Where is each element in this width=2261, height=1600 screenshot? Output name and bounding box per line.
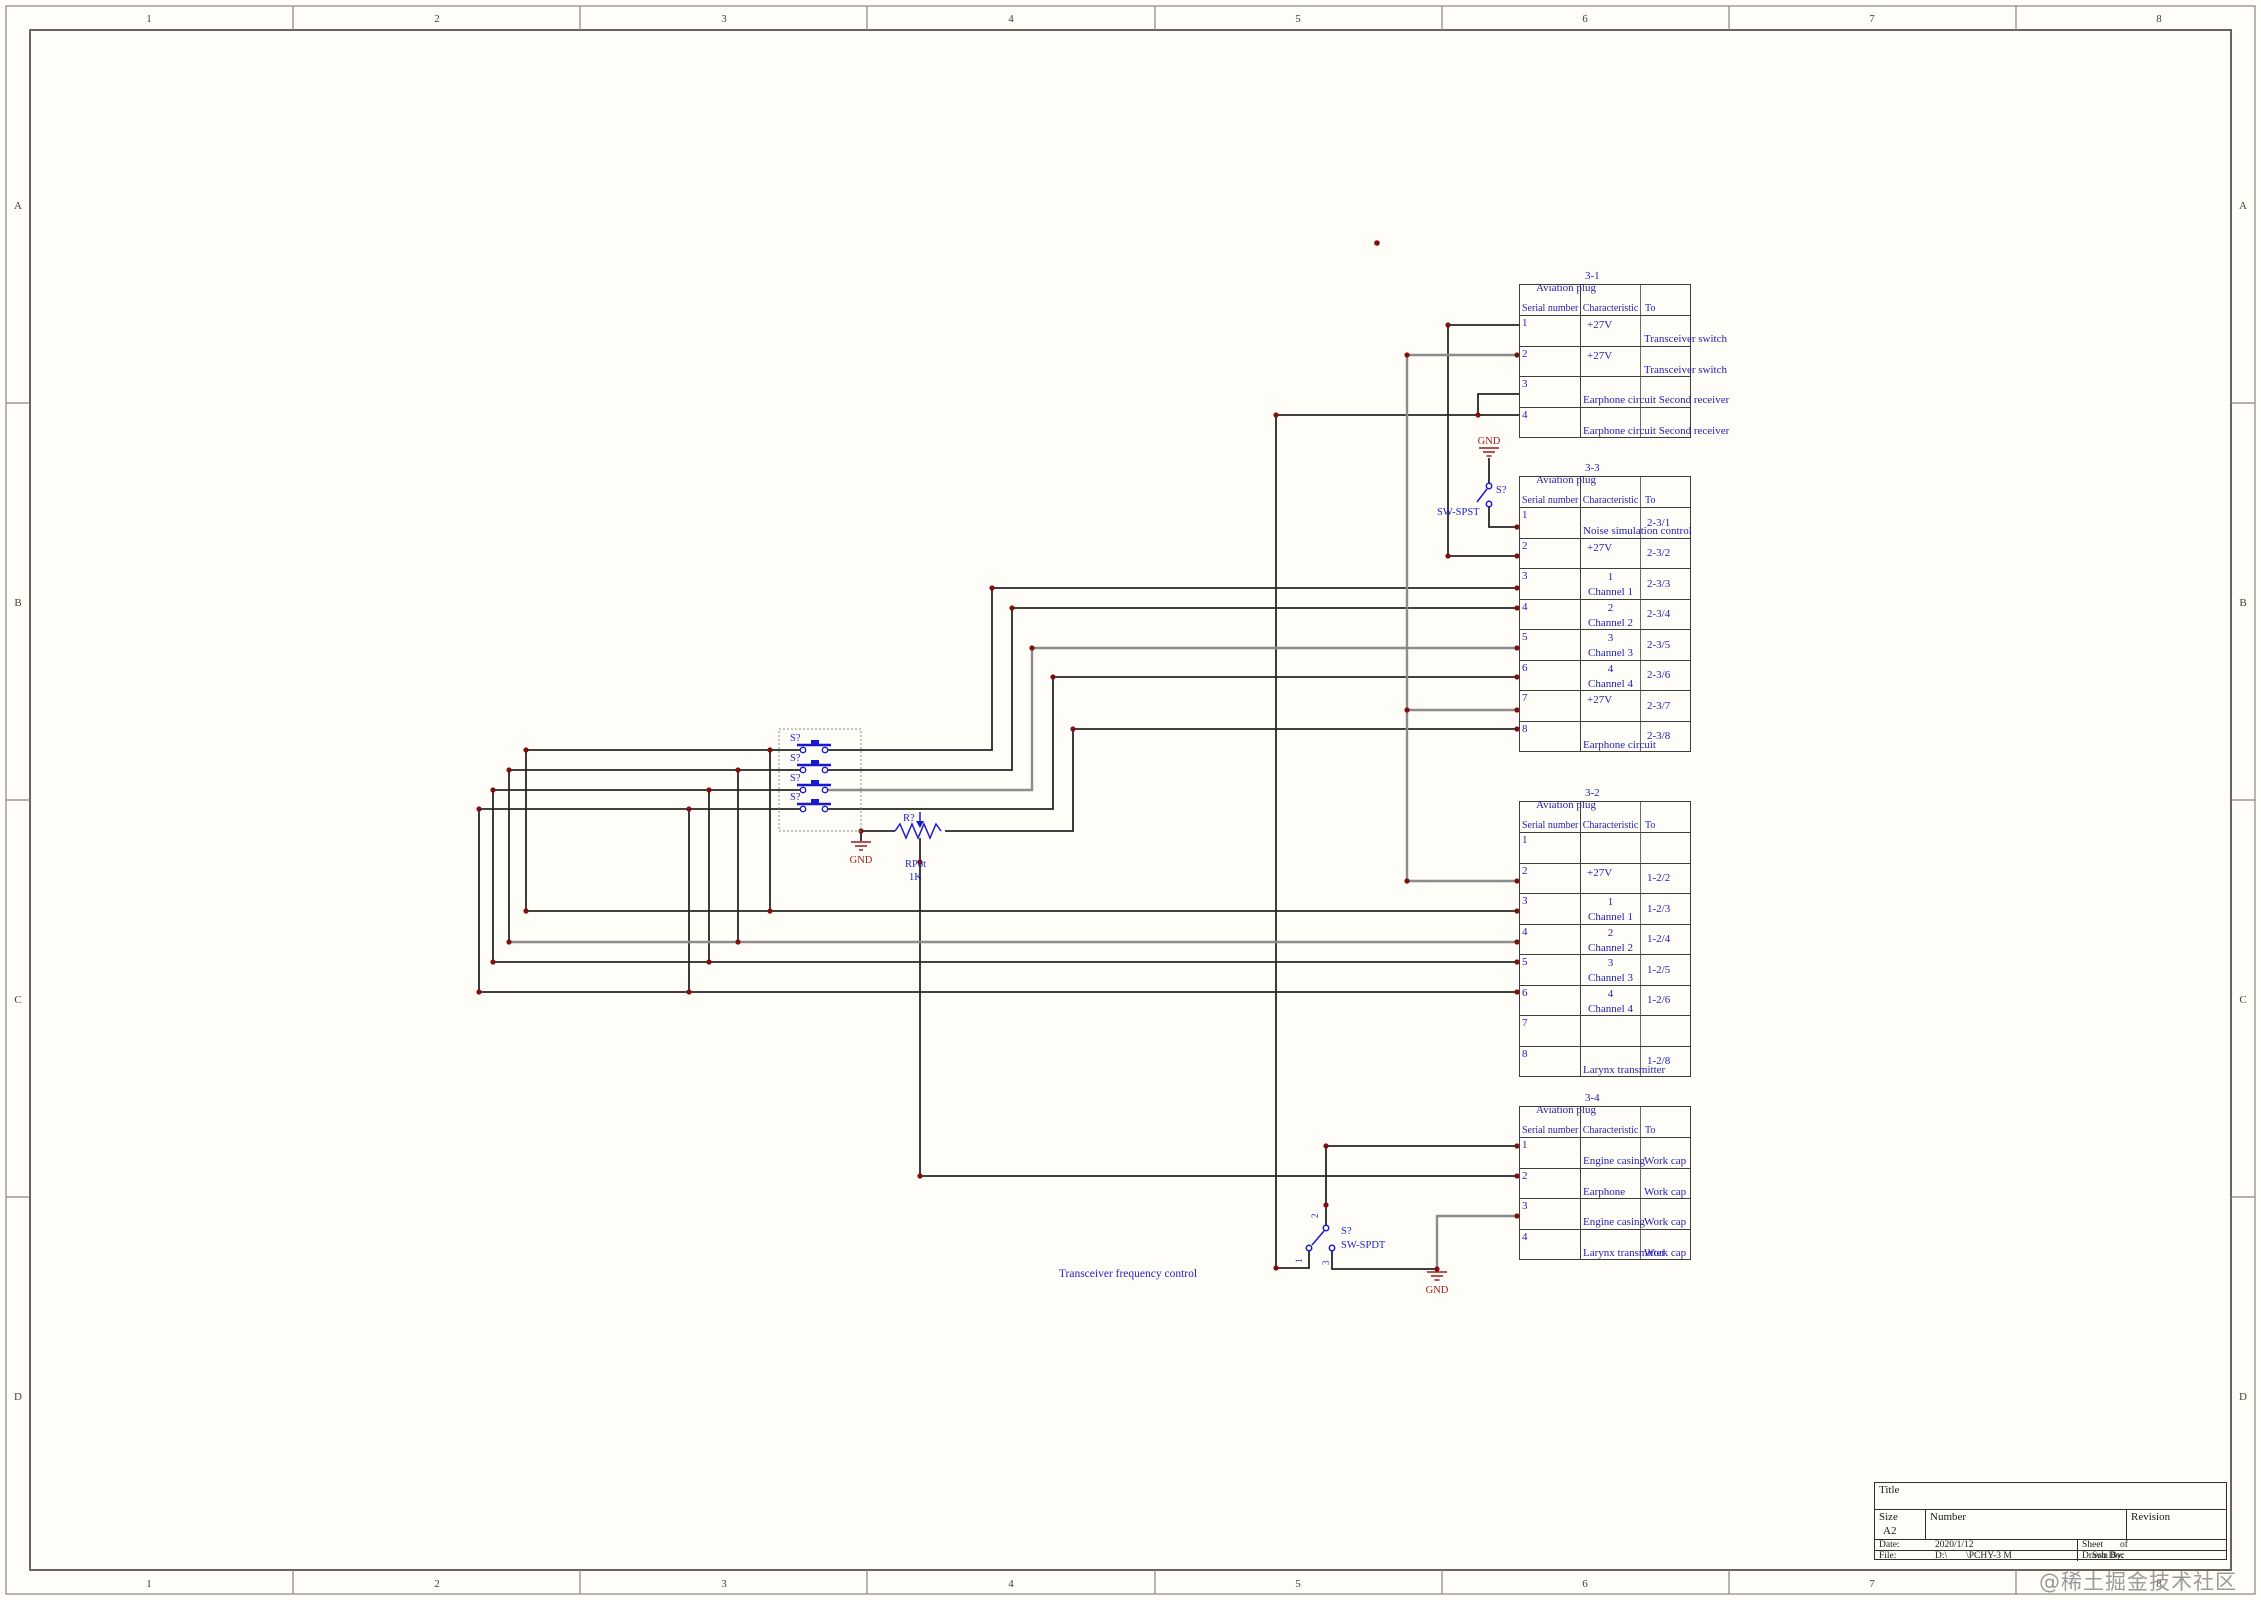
potentiometer[interactable]	[895, 812, 941, 838]
table-grid: Serial numberCharacteristicTo12+27V1-2/2…	[1519, 801, 1691, 1077]
table-row: 64Channel 41-2/6	[1520, 985, 1690, 1016]
col-label: 3	[721, 13, 727, 25]
serial-number: 5	[1522, 956, 1528, 968]
characteristic-text: Engine casing	[1583, 1155, 1645, 1167]
watermark: @稀土掘金技术社区	[2039, 1566, 2237, 1596]
to-cell: 2-3/4	[1641, 600, 1690, 630]
serial-cell: 7	[1520, 691, 1580, 721]
characteristic-cell: Earphone circuit	[1580, 722, 1641, 752]
to-cell: 1-2/8	[1641, 1047, 1690, 1077]
serial-number: 6	[1522, 987, 1528, 999]
table-row: 31Channel 12-3/3	[1520, 568, 1690, 599]
table-row: 64Channel 42-3/6	[1520, 660, 1690, 691]
table-row: 53Channel 31-2/5	[1520, 954, 1690, 985]
aviation-plug-table-3-1[interactable]: 3-1Aviation plugSerial numberCharacteris…	[1519, 284, 1691, 438]
table-row: 8Larynx transmitter1-2/8	[1520, 1046, 1690, 1077]
to-cell: 2-3/2	[1641, 539, 1690, 569]
characteristic-value: 1	[1581, 571, 1640, 583]
characteristic-text: Channel 2	[1588, 942, 1633, 954]
characteristic-cell: 2Channel 2	[1580, 925, 1641, 955]
characteristic-cell: +27V	[1580, 691, 1641, 721]
characteristic-cell: Larynx transmitter	[1580, 1047, 1641, 1077]
table-row: 1+27VTransceiver switch	[1520, 315, 1690, 346]
col-label: 4	[1008, 1578, 1014, 1590]
drawn-by-cell: Drawn By: Sch Doc	[2077, 1551, 2226, 1561]
row-label: B	[14, 597, 21, 609]
col-label: 5	[1295, 13, 1301, 25]
characteristic-cell: Larynx transmitter	[1580, 1230, 1641, 1260]
to-code: 2-3/7	[1647, 700, 1670, 712]
characteristic-value: +27V	[1587, 350, 1612, 362]
serial-cell: 2	[1520, 864, 1580, 894]
junction-dots	[476, 240, 1519, 1271]
to-cell	[1641, 408, 1690, 438]
characteristic-cell	[1580, 833, 1641, 863]
characteristic-cell: Engine casing	[1580, 1199, 1641, 1229]
serial-cell: 4	[1520, 1230, 1580, 1260]
characteristic-value: +27V	[1587, 867, 1612, 879]
characteristic-cell: +27V	[1580, 347, 1641, 377]
to-code: 1-2/3	[1647, 903, 1670, 915]
to-code: 2-3/8	[1647, 730, 1670, 742]
to-text: Transceiver switch	[1644, 333, 1727, 345]
wire-ch2-right	[828, 608, 1519, 770]
table-grid: Serial numberCharacteristicTo1+27VTransc…	[1519, 284, 1691, 438]
serial-cell: 1	[1520, 833, 1580, 863]
size-value: A2	[1883, 1525, 1896, 1537]
characteristic-text: Earphone	[1583, 1186, 1625, 1198]
characteristic-cell: 3Channel 3	[1580, 630, 1641, 660]
characteristic-cell: Engine casing	[1580, 1138, 1641, 1168]
row-label: D	[14, 1391, 22, 1403]
row-label: C	[2239, 994, 2246, 1006]
characteristic-cell: 3Channel 3	[1580, 955, 1641, 985]
to-cell: 2-3/7	[1641, 691, 1690, 721]
characteristic-value: 3	[1581, 632, 1640, 644]
serial-cell: 2	[1520, 1169, 1580, 1199]
to-cell: 1-2/4	[1641, 925, 1690, 955]
table-row: 2+27VTransceiver switch	[1520, 346, 1690, 377]
table-number: 3-3	[1585, 462, 1600, 474]
table-row: 3Engine casingWork cap	[1520, 1198, 1690, 1229]
characteristic-cell: Earphone	[1580, 1169, 1641, 1199]
serial-cell: 8	[1520, 722, 1580, 752]
characteristic-text: Channel 4	[1588, 1003, 1633, 1015]
characteristic-cell: Noise simulation control	[1580, 508, 1641, 538]
to-cell: 1-2/2	[1641, 864, 1690, 894]
col-label: 3	[721, 1578, 727, 1590]
serial-number: 8	[1522, 723, 1528, 735]
table-row: 3Earphone circuit Second receiver	[1520, 376, 1690, 407]
serial-cell: 6	[1520, 986, 1580, 1016]
characteristic-cell: 1Channel 1	[1580, 569, 1641, 599]
table-row: 1	[1520, 832, 1690, 863]
to-code: 2-3/6	[1647, 669, 1670, 681]
designator: S?	[790, 733, 801, 744]
to-cell	[1641, 833, 1690, 863]
characteristic-cell: +27V	[1580, 539, 1641, 569]
col-label: 5	[1295, 1578, 1301, 1590]
characteristic-cell: 4Channel 4	[1580, 661, 1641, 691]
table-row: 4Larynx transmitterWork cap	[1520, 1229, 1690, 1260]
spdt-switch[interactable]	[1306, 1225, 1334, 1250]
file-value: D:\ \PCHY-3 M	[1935, 1551, 2012, 1561]
table-row: 53Channel 32-3/5	[1520, 629, 1690, 660]
number-cell: Number	[1925, 1510, 2126, 1539]
sheet-of-label: of	[2120, 1540, 2128, 1550]
serial-cell: 8	[1520, 1047, 1580, 1077]
serial-cell: 7	[1520, 1016, 1580, 1046]
wire-27v-bus	[1407, 355, 1519, 881]
serial-number: 8	[1522, 1048, 1528, 1060]
serial-number: 4	[1522, 1231, 1528, 1243]
sheet-cell: Sheet of	[2077, 1540, 2226, 1550]
wire-spdt-common	[1326, 1146, 1519, 1225]
characteristic-value: 2	[1581, 927, 1640, 939]
to-text: Transceiver switch	[1644, 364, 1727, 376]
characteristic-value: 1	[1581, 896, 1640, 908]
to-cell: 2-3/8	[1641, 722, 1690, 752]
designator: S?	[790, 773, 801, 784]
characteristic-text: Engine casing	[1583, 1216, 1645, 1228]
to-code: 2-3/1	[1647, 517, 1670, 529]
sheet-frame	[6, 6, 2255, 1594]
header-cell: Serial number	[1520, 802, 1580, 832]
characteristic-cell: Earphone circuit Second receiver	[1580, 408, 1641, 438]
part-value: 1K	[909, 872, 922, 883]
serial-number: 7	[1522, 1017, 1528, 1029]
date-cell: Date: 2020/1/12	[1875, 1540, 2077, 1550]
part-type: SW-SPDT	[1341, 1240, 1386, 1251]
characteristic-value: 3	[1581, 957, 1640, 969]
title-cell: Title	[1875, 1483, 2226, 1509]
characteristic-value: 4	[1581, 663, 1640, 675]
title-block: Title Size A2 Number Revision Date: 2020…	[1874, 1482, 2227, 1560]
push-button-1[interactable]	[797, 740, 831, 753]
header-cell: Serial number	[1520, 1107, 1580, 1137]
to-cell: Work cap	[1641, 1199, 1690, 1229]
to-code: 1-2/6	[1647, 994, 1670, 1006]
to-cell: 2-3/6	[1641, 661, 1690, 691]
serial-number: 2	[1522, 348, 1528, 360]
header-cell: To	[1641, 802, 1690, 832]
gnd-label: GND	[1478, 436, 1501, 447]
push-button-3[interactable]	[797, 780, 831, 793]
header-cell: Serial number	[1520, 477, 1580, 507]
table-row: 7+27V2-3/7	[1520, 690, 1690, 721]
number-label: Number	[1930, 1511, 1966, 1523]
table-header-row: Serial numberCharacteristicTo	[1520, 477, 1690, 507]
characteristic-cell: +27V	[1580, 864, 1641, 894]
file-cell: File: D:\ \PCHY-3 M	[1875, 1551, 2077, 1561]
col-label: 7	[1869, 13, 1875, 25]
gnd-labels: GND GND GND	[850, 436, 1501, 1296]
characteristic-cell: 4Channel 4	[1580, 986, 1641, 1016]
characteristic-cell: 2Channel 2	[1580, 600, 1641, 630]
header-cell: Characteristic	[1580, 477, 1641, 507]
header-cell: To	[1641, 1107, 1690, 1137]
table-row: 42Channel 21-2/4	[1520, 924, 1690, 955]
to-cell: 2-3/3	[1641, 569, 1690, 599]
aviation-plug-table-3-3[interactable]: 3-3Aviation plugSerial numberCharacteris…	[1519, 476, 1691, 752]
aviation-plug-table-3-4[interactable]: 3-4Aviation plugSerial numberCharacteris…	[1519, 1106, 1691, 1260]
spst-switch[interactable]	[1477, 483, 1492, 506]
sheet-label: Sheet	[2082, 1540, 2103, 1550]
gnd-label: GND	[1426, 1285, 1449, 1296]
wire-earphone-bus	[1276, 415, 1309, 1268]
designator: S?	[790, 792, 801, 803]
gnd-symbol-1	[851, 842, 871, 850]
table-number: 3-1	[1585, 270, 1600, 282]
serial-number: 2	[1522, 540, 1528, 552]
gnd-symbol-3	[1427, 1272, 1447, 1280]
header-cell: Characteristic	[1580, 1107, 1641, 1137]
table-grid: Serial numberCharacteristicTo1Engine cas…	[1519, 1106, 1691, 1260]
serial-cell: 3	[1520, 377, 1580, 407]
table-row: 1Noise simulation control2-3/1	[1520, 507, 1690, 538]
wire-wiper	[920, 838, 1519, 1176]
to-cell	[1641, 1016, 1690, 1046]
table-row: 4Earphone circuit Second receiver	[1520, 407, 1690, 438]
col-label: 6	[1582, 13, 1588, 25]
table-row: 2+27V2-3/2	[1520, 538, 1690, 569]
serial-cell: 3	[1520, 894, 1580, 924]
table-row: 31Channel 11-2/3	[1520, 893, 1690, 924]
serial-number: 6	[1522, 662, 1528, 674]
date-label: Date:	[1879, 1540, 1900, 1550]
to-cell: 1-2/3	[1641, 894, 1690, 924]
table-row: 7	[1520, 1015, 1690, 1046]
to-cell: Transceiver switch	[1641, 316, 1690, 346]
wire-engine-gnd	[1437, 1216, 1519, 1269]
designator: S?	[790, 753, 801, 764]
revision-cell: Revision	[2126, 1510, 2226, 1539]
header-cell: Characteristic	[1580, 802, 1641, 832]
characteristic-text: Channel 4	[1588, 678, 1633, 690]
part-type: RPot	[905, 859, 926, 870]
doc-type-overlay: Sch Doc	[2092, 1551, 2124, 1561]
table-header-row: Serial numberCharacteristicTo	[1520, 802, 1690, 832]
serial-number: 3	[1522, 895, 1528, 907]
characteristic-cell: Earphone circuit Second receiver	[1580, 377, 1641, 407]
serial-number: 2	[1522, 1170, 1528, 1182]
to-cell: 1-2/6	[1641, 986, 1690, 1016]
col-label: 1	[146, 1578, 152, 1590]
to-text: Work cap	[1644, 1216, 1686, 1228]
gnd-symbol-2	[1479, 448, 1499, 456]
to-cell: 2-3/1	[1641, 508, 1690, 538]
serial-cell: 3	[1520, 1199, 1580, 1229]
characteristic-cell: +27V	[1580, 316, 1641, 346]
col-label: 1	[146, 13, 152, 25]
serial-number: 3	[1522, 570, 1528, 582]
to-code: 1-2/8	[1647, 1055, 1670, 1067]
row-label: C	[14, 994, 21, 1006]
row-label: A	[2239, 200, 2247, 212]
header-cell: Characteristic	[1580, 285, 1641, 315]
table-header-row: Serial numberCharacteristicTo	[1520, 1107, 1690, 1137]
serial-number: 1	[1522, 834, 1528, 846]
schematic-sheet: { "frame": { "columns": ["1","2","3","4"…	[0, 0, 2261, 1600]
title-label: Title	[1879, 1484, 1899, 1496]
table-row: 42Channel 22-3/4	[1520, 599, 1690, 630]
serial-number: 4	[1522, 926, 1528, 938]
serial-cell: 1	[1520, 316, 1580, 346]
to-text: Work cap	[1644, 1186, 1686, 1198]
table-header-row: Serial numberCharacteristicTo	[1520, 285, 1690, 315]
row-label: A	[14, 200, 22, 212]
characteristic-value: +27V	[1587, 694, 1612, 706]
serial-number: 1	[1522, 1139, 1528, 1151]
to-cell	[1641, 377, 1690, 407]
to-code: 1-2/4	[1647, 933, 1670, 945]
push-button-2[interactable]	[797, 760, 831, 773]
date-value: 2020/1/12	[1935, 1540, 1974, 1550]
serial-cell: 3	[1520, 569, 1580, 599]
serial-number: 3	[1522, 1200, 1528, 1212]
stray-dot	[1374, 240, 1380, 246]
pin-number: 3	[1321, 1260, 1331, 1265]
to-code: 2-3/4	[1647, 608, 1670, 620]
serial-cell: 4	[1520, 925, 1580, 955]
characteristic-text: Channel 3	[1588, 972, 1633, 984]
col-label: 2	[434, 1578, 440, 1590]
designator: S?	[1496, 485, 1507, 496]
pin-number: 2	[1310, 1214, 1320, 1219]
table-row: 8Earphone circuit2-3/8	[1520, 721, 1690, 752]
serial-cell: 1	[1520, 508, 1580, 538]
table-number: 3-2	[1585, 787, 1600, 799]
to-code: 2-3/2	[1647, 547, 1670, 559]
serial-number: 1	[1522, 317, 1528, 329]
col-label: 2	[434, 13, 440, 25]
to-code: 2-3/3	[1647, 578, 1670, 590]
schematic-canvas: 1 2 3 4 5 6 7 8 1 2 3 4 5 6 7 8 A B C D …	[0, 0, 2261, 1600]
serial-cell: 1	[1520, 1138, 1580, 1168]
characteristic-text: Channel 1	[1588, 911, 1633, 923]
serial-number: 3	[1522, 378, 1528, 390]
pin-number: 1	[1294, 1259, 1304, 1264]
table-row: 2EarphoneWork cap	[1520, 1168, 1690, 1199]
col-label: 6	[1582, 1578, 1588, 1590]
size-cell: Size A2	[1875, 1510, 1925, 1539]
to-cell: 1-2/5	[1641, 955, 1690, 985]
characteristic-text: Channel 3	[1588, 647, 1633, 659]
serial-number: 1	[1522, 509, 1528, 521]
serial-cell: 5	[1520, 630, 1580, 660]
characteristic-value: +27V	[1587, 542, 1612, 554]
characteristic-cell: 1Channel 1	[1580, 894, 1641, 924]
file-label: File:	[1879, 1551, 1896, 1561]
serial-cell: 6	[1520, 661, 1580, 691]
gnd-label: GND	[850, 855, 873, 866]
designator: S?	[1341, 1226, 1352, 1237]
table-row: 2+27V1-2/2	[1520, 863, 1690, 894]
to-cell: 2-3/5	[1641, 630, 1690, 660]
aviation-plug-table-3-2[interactable]: 3-2Aviation plugSerial numberCharacteris…	[1519, 801, 1691, 1077]
wire-ch3-right	[828, 648, 1519, 790]
wires-gray	[509, 355, 1519, 1269]
to-code: 1-2/5	[1647, 964, 1670, 976]
col-label: 8	[2156, 13, 2162, 25]
net-note: Transceiver frequency control	[1059, 1268, 1197, 1280]
to-cell: Transceiver switch	[1641, 347, 1690, 377]
table-number: 3-4	[1585, 1092, 1600, 1104]
row-label: D	[2239, 1391, 2247, 1403]
to-cell: Work cap	[1641, 1230, 1690, 1260]
characteristic-value: 2	[1581, 602, 1640, 614]
part-type: SW-SPST	[1437, 507, 1480, 518]
component-labels: S? S? S? S? R? RPot 1K S? SW-SPST S? SW-…	[790, 485, 1507, 1280]
serial-cell: 5	[1520, 955, 1580, 985]
serial-cell: 4	[1520, 408, 1580, 438]
wire-earphone	[1276, 394, 1519, 415]
serial-number: 4	[1522, 601, 1528, 613]
to-text: Work cap	[1644, 1247, 1686, 1259]
size-label: Size	[1879, 1511, 1898, 1523]
header-cell: To	[1641, 477, 1690, 507]
serial-number: 7	[1522, 692, 1528, 704]
serial-cell: 2	[1520, 347, 1580, 377]
to-text: Work cap	[1644, 1155, 1686, 1167]
header-cell: Serial number	[1520, 285, 1580, 315]
to-cell: Work cap	[1641, 1169, 1690, 1199]
ruler-labels: 1 2 3 4 5 6 7 8 1 2 3 4 5 6 7 8 A B C D …	[14, 13, 2247, 1590]
characteristic-cell	[1580, 1016, 1641, 1046]
serial-number: 4	[1522, 409, 1528, 421]
serial-number: 2	[1522, 865, 1528, 877]
table-grid: Serial numberCharacteristicTo1Noise simu…	[1519, 476, 1691, 752]
to-cell: Work cap	[1641, 1138, 1690, 1168]
characteristic-text: Channel 2	[1588, 617, 1633, 629]
to-code: 1-2/2	[1647, 872, 1670, 884]
col-label: 4	[1008, 13, 1014, 25]
row-label: B	[2239, 597, 2246, 609]
table-row: 1Engine casingWork cap	[1520, 1137, 1690, 1168]
serial-number: 5	[1522, 631, 1528, 643]
header-cell: To	[1641, 285, 1690, 315]
serial-cell: 2	[1520, 539, 1580, 569]
col-label: 7	[1869, 1578, 1875, 1590]
to-code: 2-3/5	[1647, 639, 1670, 651]
wires	[479, 325, 1519, 1271]
designator: R?	[903, 813, 915, 824]
revision-label: Revision	[2131, 1511, 2170, 1523]
serial-cell: 4	[1520, 600, 1580, 630]
characteristic-text: Channel 1	[1588, 586, 1633, 598]
characteristic-value: 4	[1581, 988, 1640, 1000]
characteristic-value: +27V	[1587, 319, 1612, 331]
wire-ch1-right	[828, 588, 1519, 750]
push-button-4[interactable]	[797, 799, 831, 812]
